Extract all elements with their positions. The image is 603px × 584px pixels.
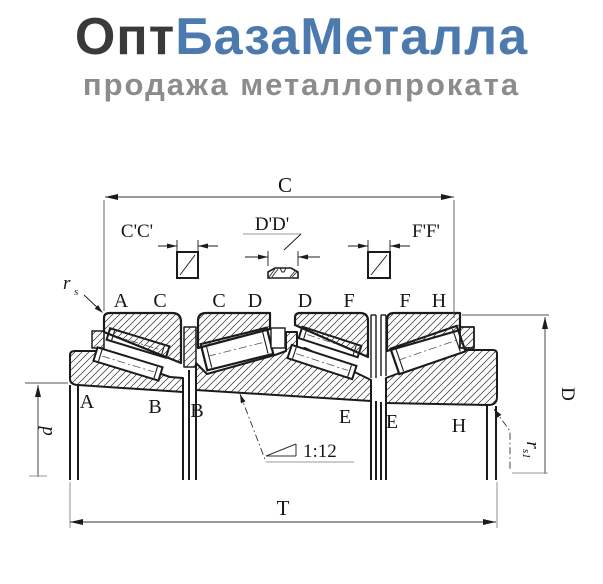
cone-rib-left [92,331,104,348]
page: { "logo": { "title_dark": "Опт", "title_… [0,0,603,584]
top-letter-c2: C [212,290,225,312]
rs-label: r [63,273,71,294]
bottom-letter-a: A [80,391,95,413]
cone-rib-gap1 [184,327,196,367]
cup-4-lip [460,327,474,348]
top-letter-row: A C C D D F F H [114,290,446,312]
cage-block-gap2 [271,328,285,348]
rs-label-sub: s [74,286,78,298]
bottom-letter-b1: B [148,396,161,418]
radius-rs: r s [63,273,103,313]
section-ff-label: F'F' [412,221,440,242]
section-dd-label: D'D' [255,214,289,235]
radius-rs1: rs1 [494,409,543,470]
taper-annotation: 1:12 [240,394,354,462]
section-ff: F'F' [348,221,440,278]
rs1-label: rs1 [520,441,543,458]
dim-d-bore-label: d [36,426,57,436]
top-letter-d1: D [248,290,262,312]
bottom-letter-e2: E [386,411,398,433]
top-letter-h: H [432,290,446,312]
dim-t-label: T [277,496,290,520]
section-cc: C'C' [121,221,218,278]
bottom-letter-b2: B [190,400,203,422]
top-letter-c1: C [153,290,166,312]
bearing-drawing: C C'C' D'D' F'F' [0,0,603,584]
dim-t: T [70,482,497,528]
top-letter-a: A [114,290,129,312]
bottom-letter-h: H [452,415,466,437]
top-letter-f1: F [343,290,354,312]
taper-label: 1:12 [303,441,337,462]
section-cc-label: C'C' [121,221,153,242]
section-dd: D'D' [243,214,320,278]
top-letter-f2: F [399,290,410,312]
dim-c-label: C [278,173,292,197]
bottom-letter-e1: E [339,406,351,428]
dim-d-bore: d [25,383,68,477]
top-letter-d2: D [298,290,312,312]
dim-d-outer-label: D [557,387,578,401]
